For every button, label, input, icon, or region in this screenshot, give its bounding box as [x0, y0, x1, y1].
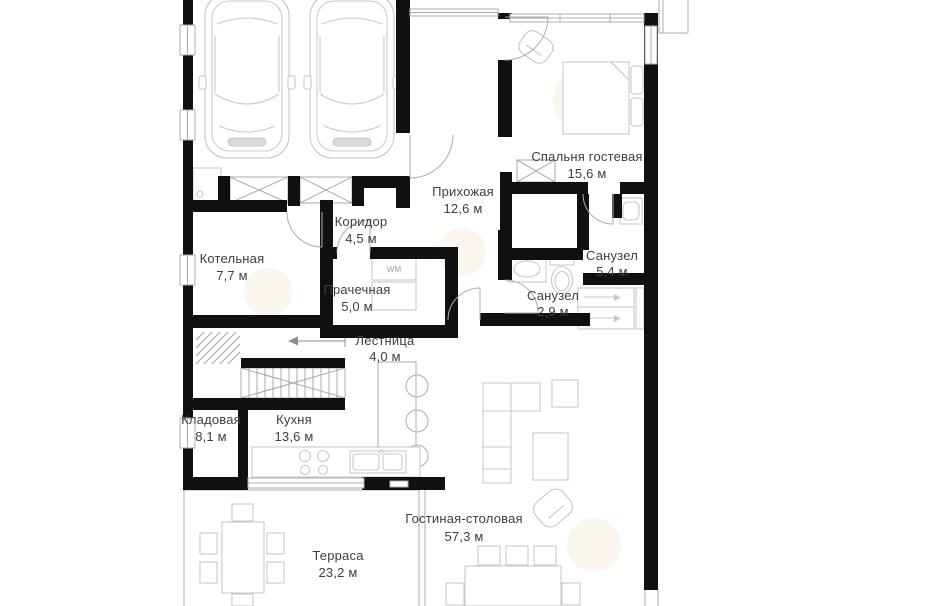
wall-segment	[620, 182, 648, 194]
living-terrace-glass-wall	[419, 490, 425, 606]
wall-segment	[445, 247, 458, 338]
terrace-chair	[200, 562, 217, 583]
room-label-hallway: Прихожая	[432, 184, 494, 199]
terrace-chair	[267, 562, 284, 583]
kitchen-sink	[350, 450, 406, 473]
terrace-chair	[200, 533, 217, 554]
terrace-furniture	[200, 504, 284, 606]
bedroom-furniture	[515, 27, 643, 134]
terrace-chair	[267, 533, 284, 554]
site-boundary-lines	[659, 0, 688, 33]
wall-segment	[323, 247, 337, 259]
terrace-boundary	[184, 490, 419, 606]
wall-segment	[288, 176, 300, 206]
window	[390, 481, 408, 487]
wall-segment	[500, 182, 588, 194]
room-area-guest-bedroom: 15,6 м	[567, 166, 606, 181]
wall-segment	[480, 313, 590, 326]
room-area-laundry: 5,0 м	[341, 299, 373, 314]
room-label-stairs: Лестница	[356, 333, 416, 348]
dining-table	[465, 566, 561, 606]
door-boiler-room	[287, 212, 322, 247]
pillow	[631, 66, 643, 94]
stair-hatch-upper	[196, 332, 240, 364]
car-1	[199, 0, 295, 158]
wall-segment	[352, 176, 364, 206]
window	[410, 9, 498, 16]
window	[645, 26, 657, 64]
room-label-storage: Кладовая	[181, 412, 241, 427]
glow	[244, 268, 292, 316]
room-area-bathroom-2: 2,9 м	[537, 304, 569, 319]
dining-chair	[534, 546, 556, 565]
wardrobe-x	[300, 177, 352, 203]
room-label-laundry: Прачечная	[323, 282, 390, 297]
room-area-living-dining: 57,3 м	[444, 529, 483, 544]
wall-segment	[498, 230, 510, 280]
wall-segment	[577, 194, 589, 250]
room-area-bathroom-1: 5,4 м	[596, 264, 628, 279]
living-room-furniture	[446, 380, 580, 606]
wall-segment	[183, 398, 345, 410]
wall-segment	[500, 248, 583, 260]
stair-direction-arrow	[288, 337, 298, 346]
room-area-kitchen: 13,6 м	[274, 429, 313, 444]
dining-chair	[562, 583, 580, 605]
glow	[567, 518, 621, 572]
dining-chair	[446, 583, 464, 605]
dining-chair	[506, 546, 528, 565]
wall-segment	[396, 0, 410, 133]
wall-segment	[183, 315, 333, 328]
wall-segment	[370, 247, 445, 259]
room-area-hallway: 12,6 м	[443, 201, 482, 216]
side-table	[552, 380, 578, 407]
coffee-table	[533, 433, 568, 480]
wall-segment	[498, 60, 512, 137]
window	[180, 25, 195, 55]
window	[248, 478, 364, 488]
terrace-table	[222, 522, 264, 593]
floor-drain-square	[193, 168, 221, 201]
room-area-storage: 8,1 м	[195, 429, 227, 444]
room-area-boiler: 7,7 м	[216, 268, 248, 283]
room-label-bathroom-2: Санузел	[527, 288, 579, 303]
room-label-boiler: Котельная	[200, 251, 265, 266]
window	[180, 255, 195, 285]
room-label-corridor: Коридор	[335, 214, 388, 229]
wall-segment	[644, 13, 658, 590]
wardrobe-x	[230, 177, 288, 203]
floor-plan-page: WM	[0, 0, 926, 606]
washer-label: WM	[387, 265, 402, 274]
wall-segment	[241, 358, 345, 368]
dining-set	[446, 546, 580, 606]
bed	[563, 62, 629, 134]
right-wall-end-lines	[645, 590, 658, 606]
pillow	[631, 98, 643, 126]
room-label-bathroom-1: Санузел	[586, 248, 638, 263]
room-label-kitchen: Кухня	[276, 412, 312, 427]
floor-plan-svg: WM	[0, 0, 926, 606]
room-area-terrace: 23,2 м	[318, 565, 357, 580]
window	[180, 110, 195, 140]
kitchen-counter	[252, 447, 420, 477]
living-armchair	[530, 485, 577, 531]
sink	[620, 198, 642, 224]
door-garage-hall	[410, 135, 453, 178]
terrace-chair	[232, 594, 253, 606]
room-area-stairs: 4,0 м	[369, 349, 401, 364]
room-label-guest-bedroom: Спальня гостевая	[531, 149, 642, 164]
dining-chair	[478, 546, 500, 565]
room-area-corridor: 4,5 м	[345, 231, 377, 246]
garage-area	[193, 0, 400, 201]
terrace-chair	[232, 504, 253, 521]
corner-sofa	[483, 383, 540, 483]
car-2	[304, 0, 400, 158]
window	[510, 14, 644, 22]
wall-segment	[183, 200, 287, 212]
room-label-living-dining: Гостиная-столовая	[405, 511, 523, 526]
wall-segment	[183, 477, 248, 490]
room-label-terrace: Терраса	[312, 548, 364, 563]
